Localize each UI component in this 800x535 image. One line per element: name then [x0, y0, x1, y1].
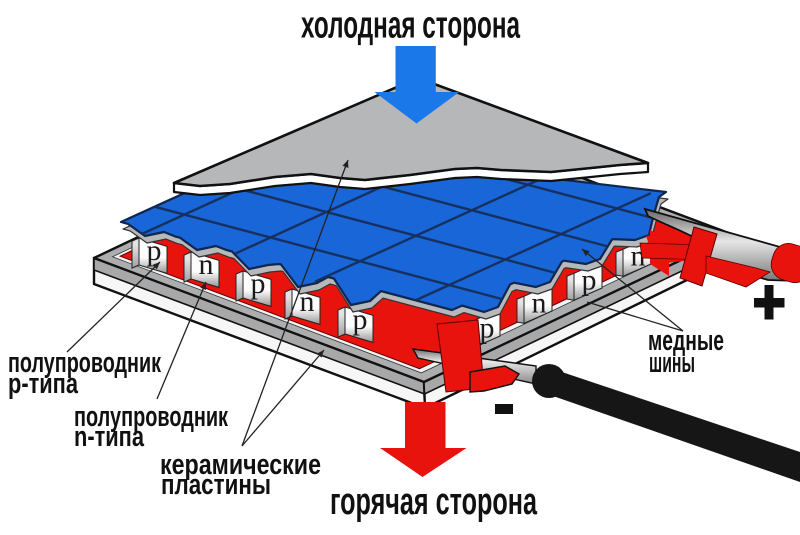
svg-text:пластины: пластины — [161, 470, 271, 501]
svg-text:холодная сторона: холодная сторона — [301, 3, 521, 46]
svg-text:горячая сторона: горячая сторона — [330, 479, 538, 522]
svg-text:шины: шины — [649, 348, 695, 379]
svg-text:p-типа: p-типа — [8, 369, 78, 400]
svg-text:n-типа: n-типа — [74, 422, 144, 453]
